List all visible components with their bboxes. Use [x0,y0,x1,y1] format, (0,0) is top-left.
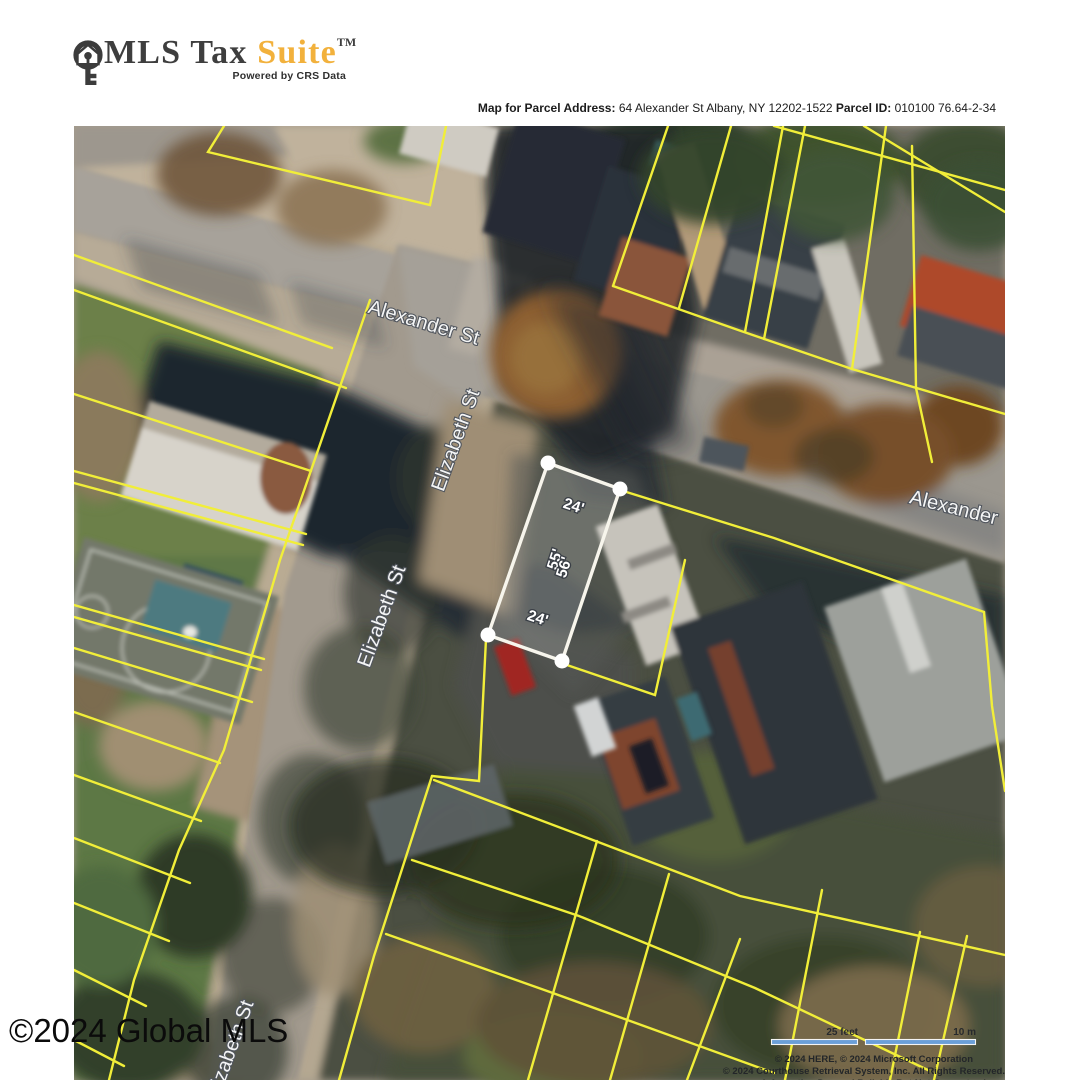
svg-text:25 feet: 25 feet [826,1027,858,1038]
svg-text:© 2024 HERE, © 2024 Microsoft: © 2024 HERE, © 2024 Microsoft Corporatio… [775,1054,973,1065]
svg-text:© 2024 Courthouse Retrieval Sy: © 2024 Courthouse Retrieval System, Inc.… [723,1066,1005,1077]
svg-text:10 m: 10 m [953,1027,976,1038]
